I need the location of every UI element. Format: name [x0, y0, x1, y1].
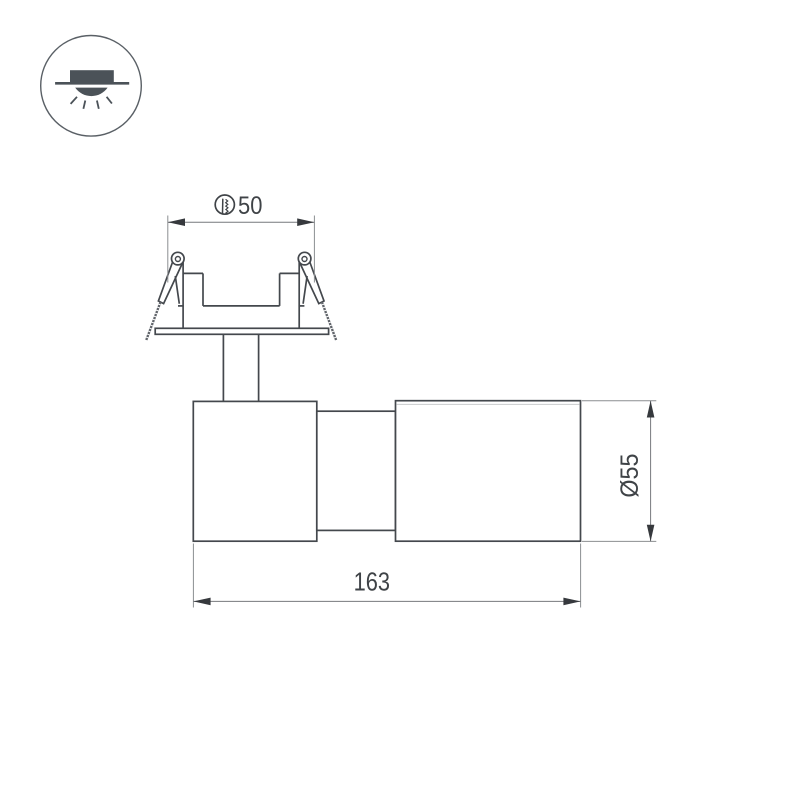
- svg-text:50: 50: [238, 193, 262, 220]
- svg-text:163: 163: [354, 566, 390, 596]
- svg-text:Ø55: Ø55: [617, 454, 644, 498]
